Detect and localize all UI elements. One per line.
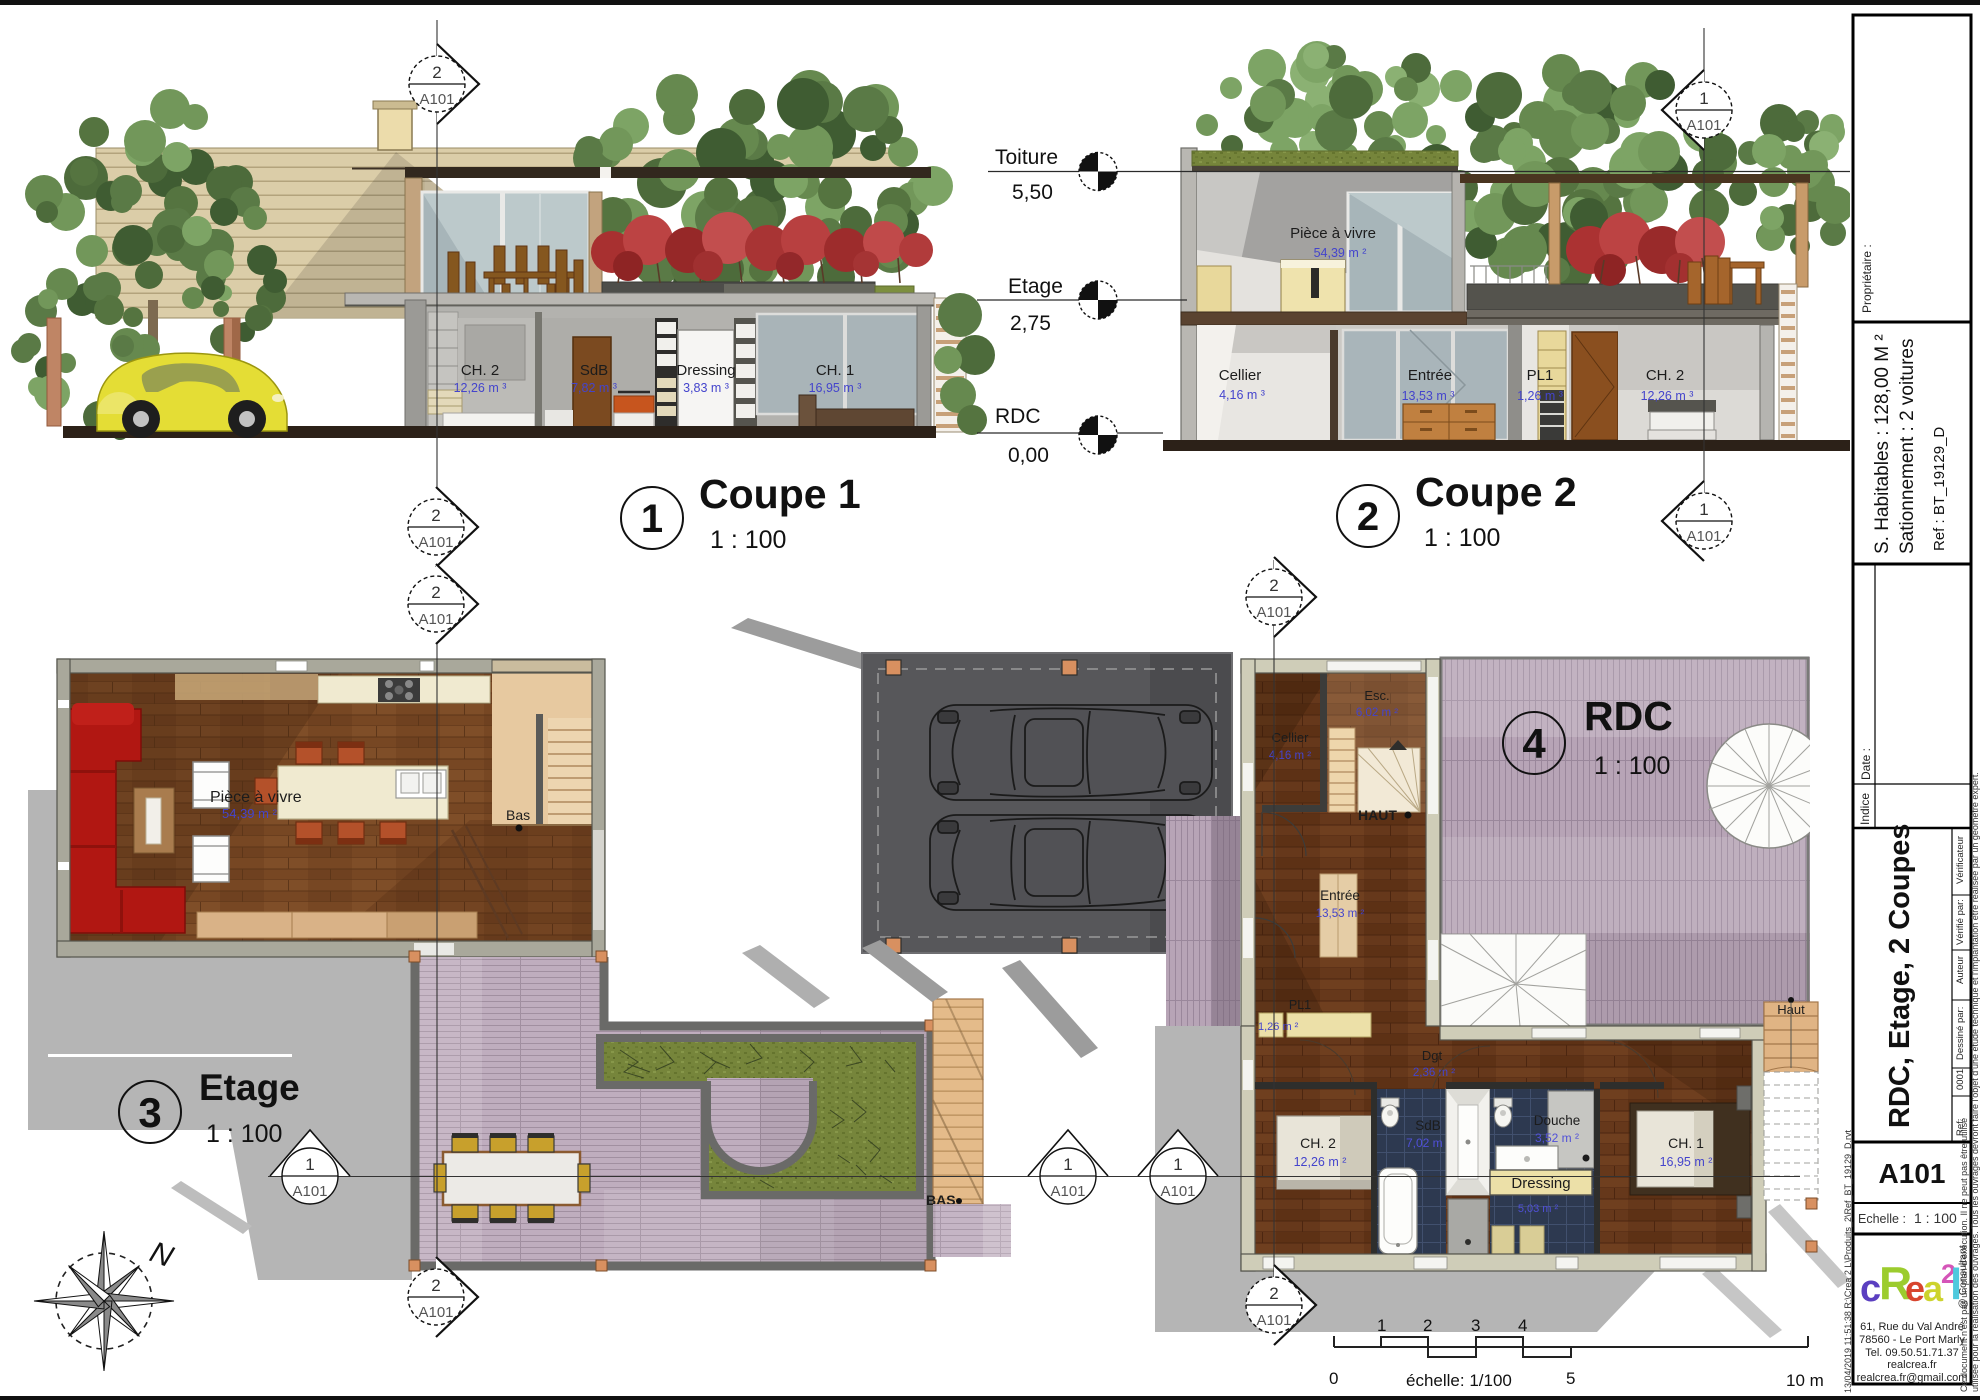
svg-text:1,26 m ²: 1,26 m ² xyxy=(1258,1021,1299,1033)
svg-text:54,39 m ²: 54,39 m ² xyxy=(1314,246,1367,260)
svg-text:Vérificateur: Vérificateur xyxy=(1955,836,1966,884)
svg-text:2: 2 xyxy=(431,583,440,602)
svg-text:Bas: Bas xyxy=(506,807,530,823)
svg-text:2: 2 xyxy=(431,1276,440,1295)
svg-text:4,16 m ³: 4,16 m ³ xyxy=(1219,388,1265,402)
svg-text:Dgt: Dgt xyxy=(1422,1048,1443,1063)
svg-text:13/04/2019 11:51:38 R:\Crea 2: 13/04/2019 11:51:38 R:\Crea 2 L\Produits… xyxy=(1843,1129,1853,1393)
svg-text:A101: A101 xyxy=(1050,1183,1085,1200)
svg-text:16,95 m ²: 16,95 m ² xyxy=(1660,1155,1713,1169)
svg-text:Echelle :: Echelle : xyxy=(1858,1212,1906,1226)
svg-text:3,52 m ²: 3,52 m ² xyxy=(1535,1131,1579,1145)
svg-text:10 m: 10 m xyxy=(1786,1371,1824,1390)
svg-text:0: 0 xyxy=(1329,1369,1338,1388)
svg-text:Toiture: Toiture xyxy=(995,146,1058,169)
svg-text:1,26 m ³: 1,26 m ³ xyxy=(1517,389,1563,403)
svg-text:6,02 m ²: 6,02 m ² xyxy=(1356,707,1398,719)
svg-text:A101: A101 xyxy=(1256,604,1291,621)
svg-text:1: 1 xyxy=(1377,1316,1386,1335)
svg-text:CH. 1: CH. 1 xyxy=(816,362,854,379)
svg-text:A101: A101 xyxy=(418,534,453,551)
svg-text:2,36 m ²: 2,36 m ² xyxy=(1413,1067,1455,1079)
svg-text:Entrée: Entrée xyxy=(1320,888,1360,903)
svg-text:PL1: PL1 xyxy=(1527,367,1554,384)
svg-text:12,26 m ³: 12,26 m ³ xyxy=(454,381,507,395)
svg-text:1: 1 xyxy=(1699,89,1708,108)
svg-text:Etage: Etage xyxy=(199,1067,300,1108)
svg-text:4,16 m ²: 4,16 m ² xyxy=(1269,750,1311,762)
svg-text:A101: A101 xyxy=(1879,1158,1946,1189)
svg-text:A101: A101 xyxy=(418,1304,453,1321)
svg-text:Dressing: Dressing xyxy=(1511,1175,1570,1192)
svg-text:S. Habitables : 128,00 M ²: S. Habitables : 128,00 M ² xyxy=(1872,334,1893,554)
svg-text:2: 2 xyxy=(431,506,440,525)
svg-text:Cellier: Cellier xyxy=(1219,367,1262,384)
svg-text:1: 1 xyxy=(1173,1155,1182,1174)
svg-text:1 : 100: 1 : 100 xyxy=(710,526,786,554)
svg-text:16,95 m ³: 16,95 m ³ xyxy=(809,381,862,395)
svg-text:Entrée: Entrée xyxy=(1408,367,1452,384)
svg-text:Esc.: Esc. xyxy=(1364,688,1389,703)
svg-text:5,03 m ²: 5,03 m ² xyxy=(1518,1203,1559,1215)
svg-text:78560 - Le Port Marly: 78560 - Le Port Marly xyxy=(1859,1334,1965,1346)
svg-text:0001: 0001 xyxy=(1955,1069,1966,1090)
svg-text:1: 1 xyxy=(1699,500,1708,519)
svg-text:CH. 2: CH. 2 xyxy=(1646,367,1684,384)
svg-text:5,50: 5,50 xyxy=(1012,181,1053,204)
svg-text:A101: A101 xyxy=(1160,1183,1195,1200)
svg-text:HAUT: HAUT xyxy=(1358,807,1397,823)
svg-text:4: 4 xyxy=(1522,720,1546,767)
svg-text:CH. 2: CH. 2 xyxy=(461,362,499,379)
svg-text:A101: A101 xyxy=(1256,1312,1291,1329)
svg-text:1 : 100: 1 : 100 xyxy=(1424,524,1500,552)
svg-text:SdB: SdB xyxy=(580,362,608,379)
svg-text:Coupe 1: Coupe 1 xyxy=(699,471,861,517)
svg-text:RDC, Etage, 2 Coupes: RDC, Etage, 2 Coupes xyxy=(1884,823,1916,1128)
svg-text:Pièce à vivre: Pièce à vivre xyxy=(210,789,302,806)
svg-text:1: 1 xyxy=(1063,1155,1072,1174)
svg-text:CH. 1: CH. 1 xyxy=(1668,1135,1704,1151)
svg-text:12,26 m ³: 12,26 m ³ xyxy=(1641,389,1694,403)
svg-text:A101: A101 xyxy=(1686,117,1721,134)
svg-text:61, Rue du Val André: 61, Rue du Val André xyxy=(1860,1321,1964,1333)
svg-text:0,00: 0,00 xyxy=(1008,444,1049,467)
svg-text:A101: A101 xyxy=(419,91,454,108)
svg-text:2: 2 xyxy=(1269,576,1278,595)
svg-text:13,53 m ³: 13,53 m ³ xyxy=(1402,389,1455,403)
svg-text:A101: A101 xyxy=(1686,528,1721,545)
svg-text:1 : 100: 1 : 100 xyxy=(206,1120,282,1148)
svg-text:A101: A101 xyxy=(418,611,453,628)
svg-text:RDC: RDC xyxy=(995,405,1041,428)
svg-text:2: 2 xyxy=(432,63,441,82)
svg-text:3: 3 xyxy=(1471,1316,1480,1335)
svg-text:Dessiné par:: Dessiné par: xyxy=(1955,1007,1966,1060)
svg-text:c: c xyxy=(1860,1268,1881,1310)
svg-text:Indice: Indice xyxy=(1858,793,1872,825)
svg-text:Etage: Etage xyxy=(1008,275,1063,298)
svg-text:realcrea.fr: realcrea.fr xyxy=(1887,1359,1937,1371)
svg-text:Pièce à vivre: Pièce à vivre xyxy=(1290,225,1376,242)
svg-text:Ref : BT_19129_D: Ref : BT_19129_D xyxy=(1931,427,1948,551)
svg-text:RDC: RDC xyxy=(1584,693,1673,739)
svg-text:CH. 2: CH. 2 xyxy=(1300,1135,1336,1151)
svg-text:SdB: SdB xyxy=(1415,1118,1441,1133)
svg-text:Ce document n'est pas un plan: Ce document n'est pas un plan d'exécutio… xyxy=(1959,1118,1969,1392)
svg-text:54,39 m ²: 54,39 m ² xyxy=(222,806,278,821)
svg-text:4: 4 xyxy=(1518,1316,1527,1335)
svg-text:2: 2 xyxy=(1269,1284,1278,1303)
svg-text:1 : 100: 1 : 100 xyxy=(1914,1210,1957,1226)
svg-text:12,26 m ²: 12,26 m ² xyxy=(1294,1155,1347,1169)
svg-text:Dressing: Dressing xyxy=(676,362,735,379)
svg-text:échelle: 1/100: échelle: 1/100 xyxy=(1406,1371,1512,1390)
svg-text:5: 5 xyxy=(1566,1369,1575,1388)
svg-text:Tel. 09.50.51.71.37: Tel. 09.50.51.71.37 xyxy=(1865,1347,1959,1359)
svg-text:Vérifié par:: Vérifié par: xyxy=(1955,899,1966,945)
svg-text:1: 1 xyxy=(305,1155,314,1174)
svg-text:utilisée pour la réalisation d: utilisée pour la réalisation des ouvrage… xyxy=(1970,772,1980,1392)
svg-text:Cellier: Cellier xyxy=(1272,730,1310,745)
svg-text:realcrea.fr@gmail.com: realcrea.fr@gmail.com xyxy=(1857,1372,1968,1384)
svg-text:Auteur: Auteur xyxy=(1955,956,1966,984)
svg-text:3,83 m ³: 3,83 m ³ xyxy=(683,381,729,395)
svg-text:1: 1 xyxy=(641,497,663,541)
svg-text:2: 2 xyxy=(1423,1316,1432,1335)
svg-text:Coupe 2: Coupe 2 xyxy=(1415,469,1577,515)
svg-text:Sationnement : 2 voitures: Sationnement : 2 voitures xyxy=(1897,339,1918,554)
svg-text:Propriétaire :: Propriétaire : xyxy=(1860,244,1874,313)
svg-text:1 : 100: 1 : 100 xyxy=(1594,752,1670,780)
svg-text:3: 3 xyxy=(138,1089,161,1136)
svg-text:7,82 m ³: 7,82 m ³ xyxy=(571,381,617,395)
svg-text:Douche: Douche xyxy=(1534,1113,1581,1128)
svg-text:13,53 m ²: 13,53 m ² xyxy=(1316,908,1365,920)
svg-text:A101: A101 xyxy=(292,1183,327,1200)
svg-text:2,75: 2,75 xyxy=(1010,312,1051,335)
svg-text:2: 2 xyxy=(1357,495,1379,539)
svg-text:7,02 m ²: 7,02 m ² xyxy=(1406,1136,1450,1150)
svg-text:Date :: Date : xyxy=(1859,748,1873,780)
